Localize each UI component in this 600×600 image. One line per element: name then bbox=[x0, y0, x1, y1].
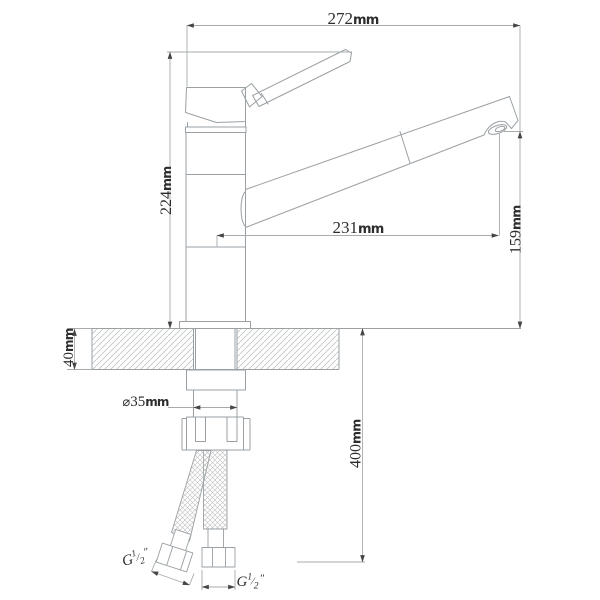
thread-label-left: G1⁄2″ bbox=[120, 546, 152, 572]
dimension-texts: 272mm 224mm 231mm 159mm 40mm ⌀35mm 400mm… bbox=[61, 9, 525, 592]
technical-drawing-page: 272mm 224mm 231mm 159mm 40mm ⌀35mm 400mm… bbox=[0, 0, 600, 600]
nut-slot-right bbox=[227, 417, 237, 442]
hose-right-hex-nut bbox=[202, 548, 235, 568]
head-cap bbox=[186, 88, 246, 123]
handle-lever bbox=[253, 50, 352, 107]
aerator-outlet-inner bbox=[495, 125, 506, 132]
base-flange bbox=[180, 322, 251, 329]
dimension-lines bbox=[67, 26, 523, 591]
countertop-hatch-right bbox=[237, 329, 339, 370]
faucet-head bbox=[186, 88, 247, 133]
thread-label-right: G1⁄2″ bbox=[237, 573, 265, 592]
nut-slot-left bbox=[196, 417, 206, 442]
shank-tube bbox=[194, 390, 238, 417]
dim-right-thread bbox=[202, 570, 235, 590]
rubber-washer bbox=[187, 370, 246, 390]
faucet-handle bbox=[242, 50, 352, 108]
spout-joint-line bbox=[400, 132, 410, 164]
handle-joint-line bbox=[262, 94, 269, 105]
countertop-hatch-left bbox=[92, 329, 194, 370]
label-hole-diameter: ⌀35mm bbox=[122, 394, 169, 410]
faucet-body bbox=[180, 133, 251, 329]
faucet-outline bbox=[180, 50, 519, 329]
collar-ring bbox=[186, 127, 247, 133]
body-column bbox=[186, 133, 246, 322]
spout-bottom-edge bbox=[246, 135, 485, 228]
shank-walls bbox=[194, 329, 238, 371]
faucet-spout bbox=[246, 97, 519, 228]
hose-right-ferrule bbox=[208, 529, 224, 548]
supply-hoses bbox=[156, 450, 235, 572]
label-height-to-handle: 224mm bbox=[158, 166, 175, 215]
label-spout-reach: 231mm bbox=[333, 218, 384, 237]
castellated-nut bbox=[182, 417, 250, 450]
label-overall-width: 272mm bbox=[328, 9, 379, 28]
dim-overall-width bbox=[187, 26, 520, 132]
faucet-dimension-drawing: 272mm 224mm 231mm 159mm 40mm ⌀35mm 400mm… bbox=[0, 0, 600, 600]
spout-top-edge bbox=[246, 97, 510, 190]
mounting-hardware bbox=[182, 370, 250, 450]
countertop-section bbox=[92, 329, 521, 371]
spout-end-face bbox=[510, 97, 519, 129]
hose-left-hex-nut bbox=[156, 543, 193, 572]
spout-root-arc bbox=[241, 192, 246, 227]
label-hose-drop: 400mm bbox=[348, 419, 365, 468]
aerator-outlet bbox=[487, 123, 508, 137]
label-outlet-height: 159mm bbox=[508, 205, 525, 254]
label-counter-thickness: 40mm bbox=[61, 328, 77, 367]
